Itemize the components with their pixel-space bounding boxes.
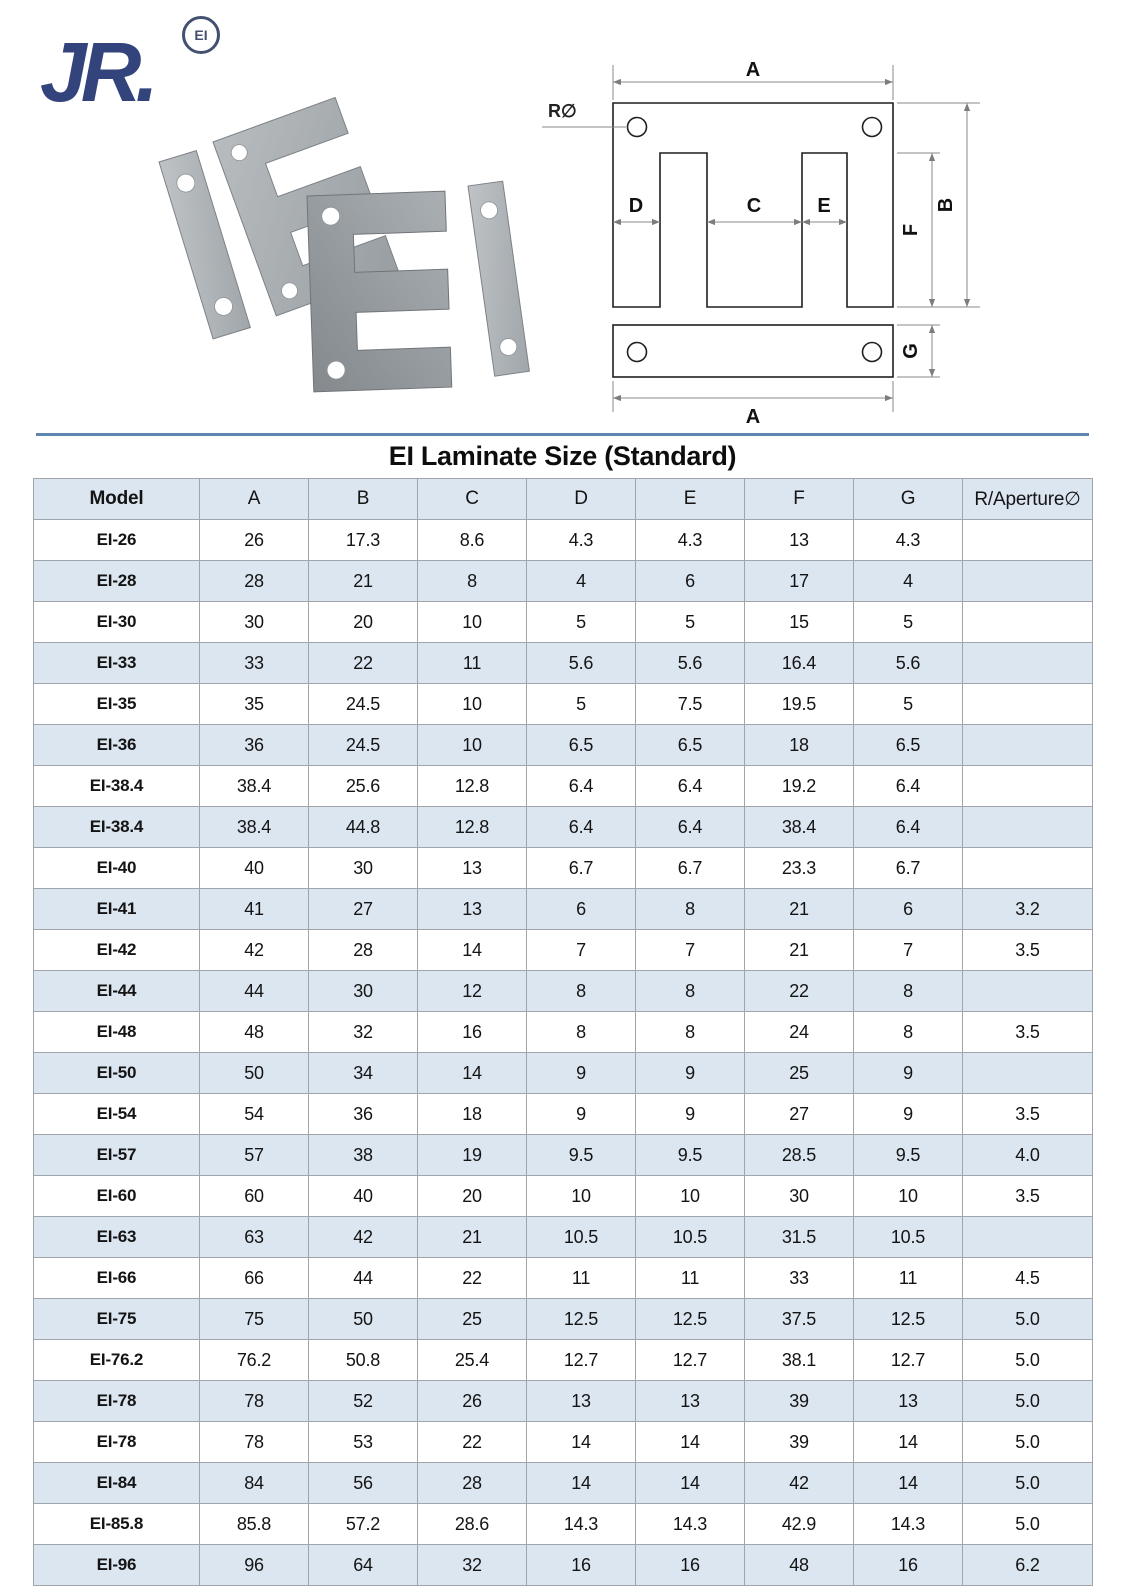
table-row: EI-84845628141442145.0 [34, 1463, 1093, 1504]
value-cell: 28.5 [745, 1135, 854, 1176]
model-cell: EI-60 [34, 1176, 200, 1217]
value-cell: 13 [636, 1381, 745, 1422]
table-row: EI-7575502512.512.537.512.55.0 [34, 1299, 1093, 1340]
dim-label-radius: R∅ [548, 101, 577, 121]
value-cell: 39 [745, 1381, 854, 1422]
value-cell: 13 [418, 848, 527, 889]
value-cell [963, 602, 1093, 643]
value-cell: 16 [854, 1545, 963, 1586]
value-cell: 52 [309, 1381, 418, 1422]
table-row: EI-5050341499259 [34, 1053, 1093, 1094]
drawing-hole-bar-left [628, 343, 647, 362]
table-body: EI-262617.38.64.34.3134.3EI-282821846174… [34, 520, 1093, 1586]
table-row: EI-41412713682163.2 [34, 889, 1093, 930]
model-cell: EI-50 [34, 1053, 200, 1094]
table-row: EI-78785322141439145.0 [34, 1422, 1093, 1463]
value-cell: 18 [418, 1094, 527, 1135]
value-cell: 10.5 [854, 1217, 963, 1258]
value-cell: 8 [854, 971, 963, 1012]
dimension-diagram: A R∅ D C E B F G A [540, 20, 1125, 432]
value-cell: 22 [418, 1422, 527, 1463]
table-row: EI-66664422111133114.5 [34, 1258, 1093, 1299]
value-cell: 17 [745, 561, 854, 602]
value-cell: 8 [636, 889, 745, 930]
value-cell: 12.8 [418, 766, 527, 807]
dim-label-f: F [900, 224, 922, 236]
value-cell: 8.6 [418, 520, 527, 561]
value-cell: 24.5 [309, 725, 418, 766]
model-cell: EI-85.8 [34, 1504, 200, 1545]
table-row: EI-3030201055155 [34, 602, 1093, 643]
model-cell: EI-38.4 [34, 807, 200, 848]
value-cell: 22 [309, 643, 418, 684]
value-cell: 5 [854, 602, 963, 643]
value-cell: 31.5 [745, 1217, 854, 1258]
value-cell: 10 [527, 1176, 636, 1217]
value-cell: 4.3 [527, 520, 636, 561]
value-cell: 39 [745, 1422, 854, 1463]
value-cell [963, 971, 1093, 1012]
value-cell: 6.4 [527, 807, 636, 848]
value-cell: 10 [418, 725, 527, 766]
value-cell [963, 684, 1093, 725]
value-cell: 9 [636, 1053, 745, 1094]
model-cell: EI-76.2 [34, 1340, 200, 1381]
value-cell: 26 [200, 520, 309, 561]
value-cell: 8 [418, 561, 527, 602]
value-cell: 56 [309, 1463, 418, 1504]
value-cell: 10 [418, 602, 527, 643]
table-row: EI-96966432161648166.2 [34, 1545, 1093, 1586]
value-cell: 6.7 [636, 848, 745, 889]
value-cell: 63 [200, 1217, 309, 1258]
value-cell: 38.4 [745, 807, 854, 848]
value-cell: 20 [309, 602, 418, 643]
value-cell: 66 [200, 1258, 309, 1299]
table-title: EI Laminate Size (Standard) [33, 441, 1092, 472]
value-cell: 37.5 [745, 1299, 854, 1340]
model-cell: EI-26 [34, 520, 200, 561]
table-row: EI-42422814772173.5 [34, 930, 1093, 971]
value-cell: 14 [854, 1422, 963, 1463]
value-cell: 19.2 [745, 766, 854, 807]
model-cell: EI-78 [34, 1422, 200, 1463]
value-cell: 22 [418, 1258, 527, 1299]
value-cell: 12.7 [527, 1340, 636, 1381]
column-header-e: E [636, 479, 745, 520]
value-cell: 6.4 [636, 807, 745, 848]
value-cell: 3.5 [963, 1094, 1093, 1135]
value-cell: 42 [745, 1463, 854, 1504]
value-cell: 16 [527, 1545, 636, 1586]
value-cell: 8 [527, 1012, 636, 1053]
value-cell: 6.4 [854, 807, 963, 848]
value-cell: 5.0 [963, 1463, 1093, 1504]
value-cell: 7 [636, 930, 745, 971]
value-cell: 18 [745, 725, 854, 766]
value-cell: 28 [418, 1463, 527, 1504]
value-cell: 75 [200, 1299, 309, 1340]
value-cell: 12.5 [636, 1299, 745, 1340]
model-cell: EI-36 [34, 725, 200, 766]
value-cell [963, 807, 1093, 848]
value-cell: 44.8 [309, 807, 418, 848]
value-cell [963, 643, 1093, 684]
value-cell: 11 [418, 643, 527, 684]
drawing-hole-top-left [628, 118, 647, 137]
model-cell: EI-41 [34, 889, 200, 930]
value-cell: 50.8 [309, 1340, 418, 1381]
value-cell: 11 [636, 1258, 745, 1299]
value-cell: 6.2 [963, 1545, 1093, 1586]
value-cell: 50 [200, 1053, 309, 1094]
value-cell: 3.5 [963, 1176, 1093, 1217]
dim-label-a-top: A [746, 59, 760, 81]
value-cell: 36 [200, 725, 309, 766]
column-header-c: C [418, 479, 527, 520]
value-cell: 9 [527, 1094, 636, 1135]
value-cell: 17.3 [309, 520, 418, 561]
brand-ei-badge: EI [182, 16, 220, 54]
value-cell: 36 [309, 1094, 418, 1135]
brand-ei-badge-text: EI [194, 27, 207, 43]
drawing-hole-bar-right [863, 343, 882, 362]
value-cell: 6 [636, 561, 745, 602]
value-cell: 40 [309, 1176, 418, 1217]
value-cell: 21 [745, 930, 854, 971]
value-cell: 96 [200, 1545, 309, 1586]
value-cell: 78 [200, 1422, 309, 1463]
value-cell: 25 [418, 1299, 527, 1340]
value-cell: 10.5 [527, 1217, 636, 1258]
value-cell: 60 [200, 1176, 309, 1217]
table-row: EI-575738199.59.528.59.54.0 [34, 1135, 1093, 1176]
value-cell: 5 [854, 684, 963, 725]
table-row: EI-78785226131339135.0 [34, 1381, 1093, 1422]
page: JR. EI [0, 0, 1125, 1584]
value-cell: 64 [309, 1545, 418, 1586]
value-cell: 5.6 [527, 643, 636, 684]
value-cell: 11 [527, 1258, 636, 1299]
value-cell: 3.5 [963, 1012, 1093, 1053]
value-cell: 14 [418, 930, 527, 971]
value-cell: 85.8 [200, 1504, 309, 1545]
table-row: EI-48483216882483.5 [34, 1012, 1093, 1053]
table-row: EI-76.276.250.825.412.712.738.112.75.0 [34, 1340, 1093, 1381]
value-cell: 9 [854, 1053, 963, 1094]
value-cell [963, 766, 1093, 807]
table-row: EI-54543618992793.5 [34, 1094, 1093, 1135]
value-cell: 5.0 [963, 1381, 1093, 1422]
column-header-f: F [745, 479, 854, 520]
value-cell: 32 [418, 1545, 527, 1586]
value-cell: 32 [309, 1012, 418, 1053]
column-header-a: A [200, 479, 309, 520]
value-cell: 26 [418, 1381, 527, 1422]
value-cell: 6.4 [636, 766, 745, 807]
value-cell: 6.7 [527, 848, 636, 889]
value-cell: 6.5 [854, 725, 963, 766]
size-table: Model A B C D E F G R/Aperture∅ EI-26261… [33, 478, 1093, 1586]
value-cell: 35 [200, 684, 309, 725]
value-cell: 42 [309, 1217, 418, 1258]
section-divider [36, 433, 1089, 436]
value-cell: 48 [200, 1012, 309, 1053]
value-cell: 24.5 [309, 684, 418, 725]
value-cell: 30 [200, 602, 309, 643]
header-row: Model A B C D E F G R/Aperture∅ [34, 479, 1093, 520]
drawing-i-bar-outline [613, 325, 893, 377]
model-cell: EI-30 [34, 602, 200, 643]
value-cell: 7.5 [636, 684, 745, 725]
model-cell: EI-38.4 [34, 766, 200, 807]
value-cell: 14 [854, 1463, 963, 1504]
value-cell: 6.5 [527, 725, 636, 766]
value-cell: 14 [636, 1422, 745, 1463]
value-cell: 19.5 [745, 684, 854, 725]
table-row: EI-404030136.76.723.36.7 [34, 848, 1093, 889]
value-cell [963, 1053, 1093, 1094]
value-cell: 12.5 [854, 1299, 963, 1340]
model-cell: EI-42 [34, 930, 200, 971]
model-cell: EI-57 [34, 1135, 200, 1176]
value-cell: 14 [527, 1463, 636, 1504]
value-cell [963, 520, 1093, 561]
value-cell: 22 [745, 971, 854, 1012]
value-cell: 9 [854, 1094, 963, 1135]
value-cell: 11 [854, 1258, 963, 1299]
dim-label-c: C [747, 195, 761, 217]
value-cell: 30 [309, 971, 418, 1012]
value-cell: 42 [200, 930, 309, 971]
dim-label-b: B [935, 198, 957, 212]
value-cell: 6 [854, 889, 963, 930]
value-cell: 9 [636, 1094, 745, 1135]
value-cell: 13 [745, 520, 854, 561]
value-cell: 15 [745, 602, 854, 643]
value-cell: 42.9 [745, 1504, 854, 1545]
value-cell: 13 [418, 889, 527, 930]
value-cell: 4.3 [854, 520, 963, 561]
value-cell: 38.4 [200, 766, 309, 807]
table-row: EI-333322115.65.616.45.6 [34, 643, 1093, 684]
model-cell: EI-33 [34, 643, 200, 684]
value-cell: 38 [309, 1135, 418, 1176]
value-cell: 27 [745, 1094, 854, 1135]
value-cell: 6.4 [854, 766, 963, 807]
value-cell: 14.3 [854, 1504, 963, 1545]
model-cell: EI-84 [34, 1463, 200, 1504]
value-cell: 10 [854, 1176, 963, 1217]
value-cell: 21 [418, 1217, 527, 1258]
value-cell [963, 561, 1093, 602]
column-header-aperture: R/Aperture∅ [963, 479, 1093, 520]
value-cell: 23.3 [745, 848, 854, 889]
value-cell: 12 [418, 971, 527, 1012]
value-cell: 41 [200, 889, 309, 930]
value-cell: 16 [636, 1545, 745, 1586]
value-cell: 4.5 [963, 1258, 1093, 1299]
value-cell: 50 [309, 1299, 418, 1340]
model-cell: EI-96 [34, 1545, 200, 1586]
value-cell: 9.5 [636, 1135, 745, 1176]
table-row: EI-353524.51057.519.55 [34, 684, 1093, 725]
photo-e-lamination-front [307, 191, 452, 392]
value-cell: 5.0 [963, 1504, 1093, 1545]
value-cell: 44 [200, 971, 309, 1012]
model-cell: EI-40 [34, 848, 200, 889]
value-cell: 38.4 [200, 807, 309, 848]
value-cell: 6.5 [636, 725, 745, 766]
table-row: EI-6363422110.510.531.510.5 [34, 1217, 1093, 1258]
model-cell: EI-75 [34, 1299, 200, 1340]
value-cell: 48 [745, 1545, 854, 1586]
model-cell: EI-78 [34, 1381, 200, 1422]
model-cell: EI-28 [34, 561, 200, 602]
table-row: EI-60604020101030103.5 [34, 1176, 1093, 1217]
table-row: EI-262617.38.64.34.3134.3 [34, 520, 1093, 561]
value-cell: 40 [200, 848, 309, 889]
value-cell: 20 [418, 1176, 527, 1217]
value-cell: 24 [745, 1012, 854, 1053]
value-cell: 27 [309, 889, 418, 930]
value-cell: 13 [854, 1381, 963, 1422]
value-cell: 19 [418, 1135, 527, 1176]
value-cell: 12.5 [527, 1299, 636, 1340]
value-cell: 4 [527, 561, 636, 602]
value-cell: 14.3 [527, 1504, 636, 1545]
value-cell: 9.5 [854, 1135, 963, 1176]
value-cell: 4 [854, 561, 963, 602]
value-cell [963, 725, 1093, 766]
value-cell: 25 [745, 1053, 854, 1094]
value-cell: 14 [636, 1463, 745, 1504]
value-cell: 6.4 [527, 766, 636, 807]
drawing-hole-top-right [863, 118, 882, 137]
value-cell: 7 [527, 930, 636, 971]
value-cell: 34 [309, 1053, 418, 1094]
brand-logo-text: JR. [40, 30, 153, 114]
dim-label-d: D [629, 195, 643, 217]
value-cell: 3.2 [963, 889, 1093, 930]
value-cell: 5.6 [854, 643, 963, 684]
value-cell: 44 [309, 1258, 418, 1299]
value-cell: 5 [527, 602, 636, 643]
value-cell: 78 [200, 1381, 309, 1422]
column-header-model: Model [34, 479, 200, 520]
value-cell: 14 [418, 1053, 527, 1094]
value-cell: 14.3 [636, 1504, 745, 1545]
value-cell: 4.3 [636, 520, 745, 561]
model-cell: EI-66 [34, 1258, 200, 1299]
value-cell: 30 [309, 848, 418, 889]
value-cell: 8 [636, 1012, 745, 1053]
value-cell: 6.7 [854, 848, 963, 889]
value-cell: 8 [527, 971, 636, 1012]
value-cell: 10 [418, 684, 527, 725]
value-cell: 13 [527, 1381, 636, 1422]
value-cell: 12.8 [418, 807, 527, 848]
value-cell: 16 [418, 1012, 527, 1053]
value-cell: 30 [745, 1176, 854, 1217]
column-header-d: D [527, 479, 636, 520]
table-row: EI-85.885.857.228.614.314.342.914.35.0 [34, 1504, 1093, 1545]
value-cell: 21 [745, 889, 854, 930]
dim-label-a-bottom: A [746, 406, 760, 428]
value-cell: 10.5 [636, 1217, 745, 1258]
value-cell: 21 [309, 561, 418, 602]
value-cell: 57 [200, 1135, 309, 1176]
value-cell: 8 [636, 971, 745, 1012]
model-cell: EI-63 [34, 1217, 200, 1258]
value-cell: 3.5 [963, 930, 1093, 971]
value-cell: 25.6 [309, 766, 418, 807]
dim-label-e: E [817, 195, 830, 217]
model-cell: EI-35 [34, 684, 200, 725]
value-cell: 6 [527, 889, 636, 930]
value-cell [963, 848, 1093, 889]
laminate-photo [140, 80, 560, 410]
table-row: EI-363624.5106.56.5186.5 [34, 725, 1093, 766]
value-cell: 33 [745, 1258, 854, 1299]
value-cell: 57.2 [309, 1504, 418, 1545]
model-cell: EI-48 [34, 1012, 200, 1053]
value-cell: 4.0 [963, 1135, 1093, 1176]
value-cell: 76.2 [200, 1340, 309, 1381]
value-cell: 10 [636, 1176, 745, 1217]
value-cell: 7 [854, 930, 963, 971]
value-cell: 54 [200, 1094, 309, 1135]
column-header-b: B [309, 479, 418, 520]
value-cell: 16.4 [745, 643, 854, 684]
table-row: EI-4444301288228 [34, 971, 1093, 1012]
table-row: EI-38.438.425.612.86.46.419.26.4 [34, 766, 1093, 807]
model-cell: EI-44 [34, 971, 200, 1012]
model-cell: EI-54 [34, 1094, 200, 1135]
value-cell: 84 [200, 1463, 309, 1504]
column-header-g: G [854, 479, 963, 520]
value-cell: 5.0 [963, 1422, 1093, 1463]
table-row: EI-282821846174 [34, 561, 1093, 602]
value-cell: 28 [200, 561, 309, 602]
value-cell: 53 [309, 1422, 418, 1463]
value-cell: 28 [309, 930, 418, 971]
value-cell: 5.0 [963, 1299, 1093, 1340]
value-cell: 12.7 [636, 1340, 745, 1381]
value-cell: 5.6 [636, 643, 745, 684]
value-cell: 9 [527, 1053, 636, 1094]
table-row: EI-38.438.444.812.86.46.438.46.4 [34, 807, 1093, 848]
value-cell: 9.5 [527, 1135, 636, 1176]
dim-label-g: G [900, 343, 922, 359]
value-cell: 38.1 [745, 1340, 854, 1381]
value-cell: 8 [854, 1012, 963, 1053]
value-cell: 25.4 [418, 1340, 527, 1381]
value-cell: 28.6 [418, 1504, 527, 1545]
value-cell: 5 [527, 684, 636, 725]
value-cell [963, 1217, 1093, 1258]
value-cell: 33 [200, 643, 309, 684]
value-cell: 5 [636, 602, 745, 643]
photo-i-bar-right [468, 181, 529, 376]
value-cell: 14 [527, 1422, 636, 1463]
value-cell: 12.7 [854, 1340, 963, 1381]
value-cell: 5.0 [963, 1340, 1093, 1381]
